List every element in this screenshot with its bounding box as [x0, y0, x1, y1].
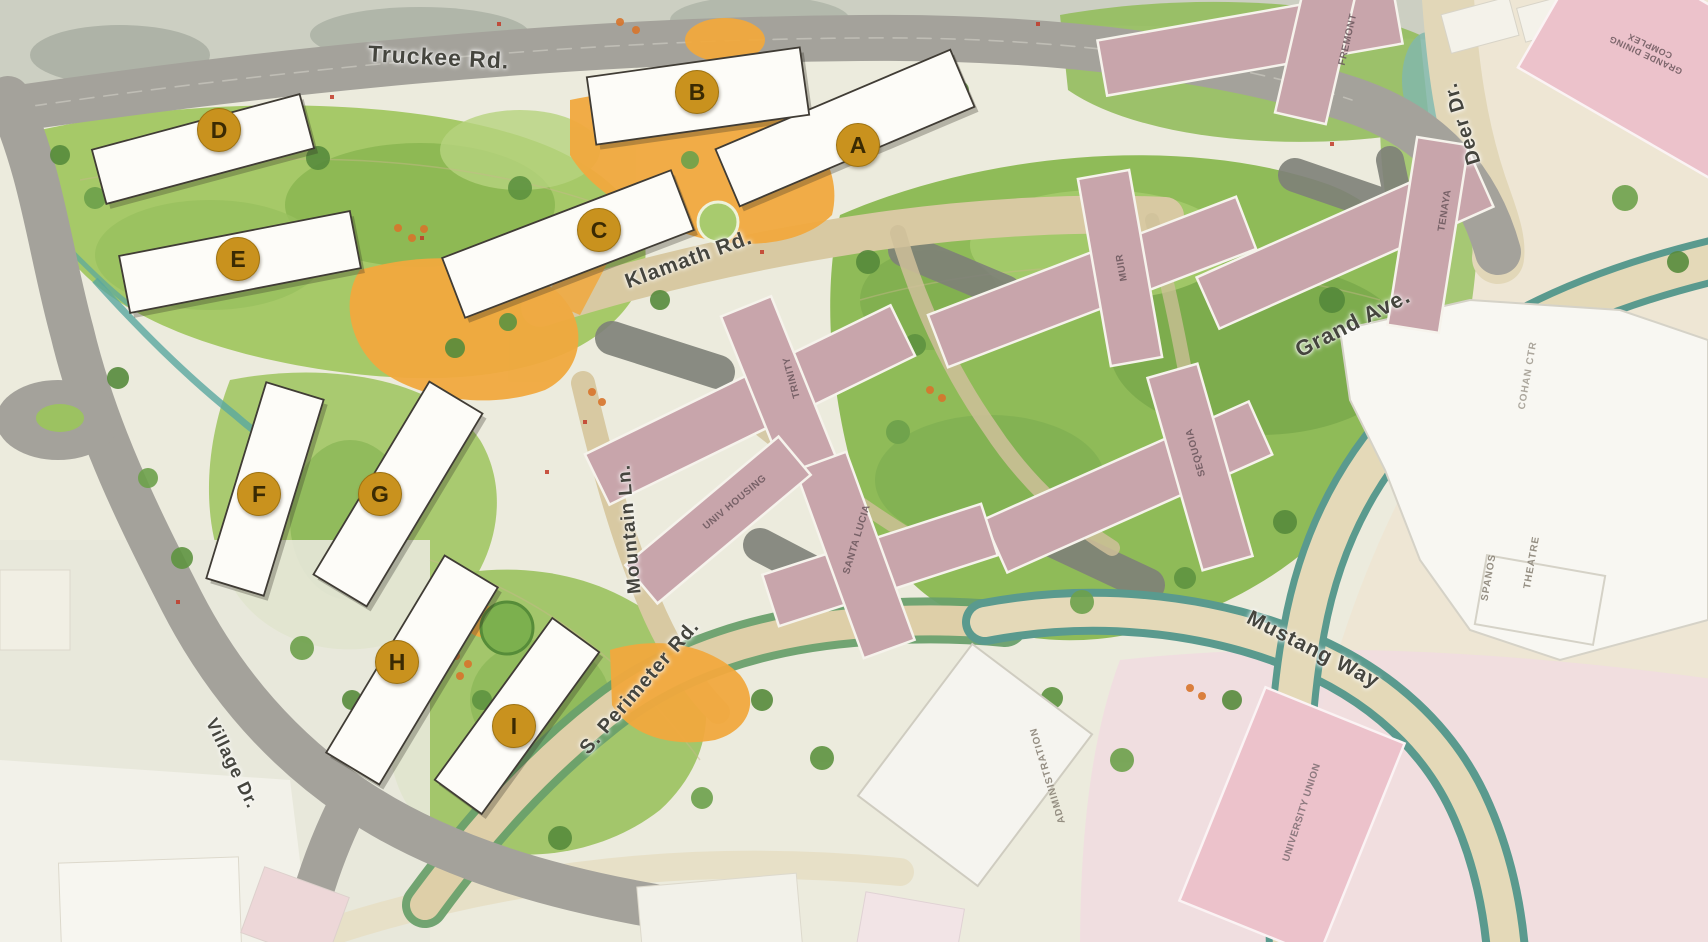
site-plan-map: Truckee Rd. Klamath Rd. Grand Ave. Deer … — [0, 0, 1708, 942]
building-badge-d[interactable]: D — [197, 108, 241, 152]
building-badge-c[interactable]: C — [577, 208, 621, 252]
building-badge-h[interactable]: H — [375, 640, 419, 684]
building-badge-b[interactable]: B — [675, 70, 719, 114]
badge-letter: A — [850, 132, 867, 159]
badge-letter: F — [252, 481, 266, 508]
badge-letter: E — [230, 246, 245, 273]
badge-letter: H — [389, 649, 406, 676]
badge-letter: B — [689, 79, 706, 106]
building-badge-e[interactable]: E — [216, 237, 260, 281]
building-badge-a[interactable]: A — [836, 123, 880, 167]
badge-letter: C — [591, 217, 608, 244]
building-badge-f[interactable]: F — [237, 472, 281, 516]
badge-letter: D — [211, 117, 228, 144]
badge-letter: I — [511, 713, 517, 740]
building-badge-g[interactable]: G — [358, 472, 402, 516]
badge-letter: G — [371, 481, 389, 508]
building-badge-i[interactable]: I — [492, 704, 536, 748]
